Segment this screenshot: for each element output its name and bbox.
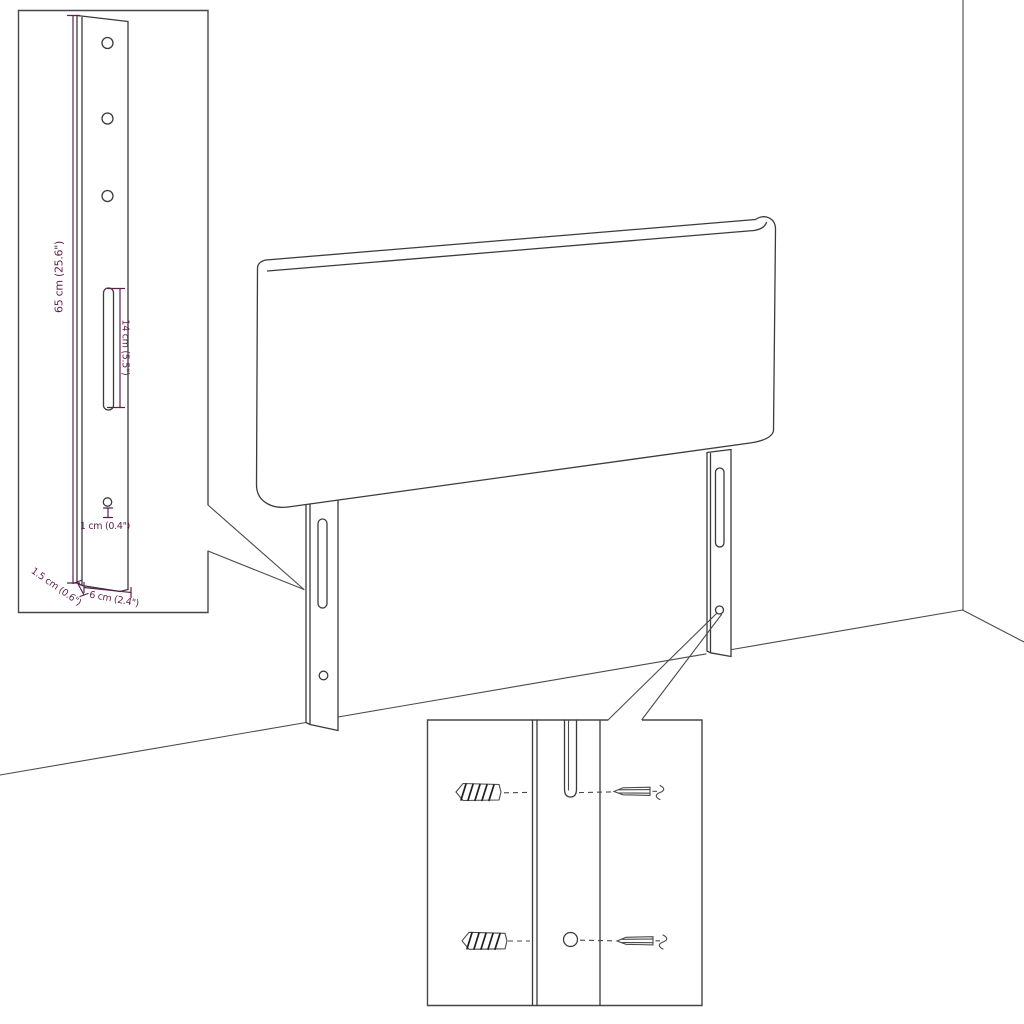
right-callout-line-left — [608, 614, 717, 721]
left-leg-bottom — [306, 723, 338, 731]
bracket-hole-1 — [102, 38, 113, 49]
right-leg-slot — [716, 468, 725, 547]
right-callout-lines — [608, 614, 722, 721]
room-corner-lines — [0, 0, 1024, 775]
dimension-65cm: 65 cm (25.6") — [53, 16, 80, 584]
dimension-1cm: 1 cm (0.4") — [80, 508, 130, 532]
left-leg-slot — [318, 519, 327, 608]
wall-plug-top — [456, 784, 501, 801]
left-callout-line-top — [208, 505, 304, 590]
assembly-diagram: 65 cm (25.6") 14 cm (5.5") 1 cm (0.4") 1… — [0, 0, 1024, 1024]
floor-line-left-c — [732, 610, 963, 650]
hardware-row-top — [456, 784, 664, 801]
hardware-row-bottom — [462, 932, 667, 949]
strip-slot — [565, 720, 577, 797]
diagram-canvas: 65 cm (25.6") 14 cm (5.5") 1 cm (0.4") 1… — [0, 0, 1024, 1024]
label-leg-thickness: 1.5 cm (0.6") — [29, 566, 83, 609]
left-leg-hole — [319, 671, 328, 680]
headboard-panel — [257, 217, 776, 508]
right-leg-top — [707, 450, 731, 453]
dimension-14cm: 14 cm (5.5") — [108, 289, 131, 408]
left-callout-lines — [208, 505, 304, 590]
bracket-small-hole — [103, 498, 111, 506]
screw-top-thread-squiggle — [656, 786, 664, 800]
dimension-1point5cm: 1.5 cm (0.6") — [29, 566, 88, 609]
floor-line-right — [963, 610, 1024, 642]
left-leg — [306, 500, 338, 731]
leg-strip-closeup — [533, 720, 601, 1006]
bracket-hole-3 — [102, 191, 113, 202]
label-leg-height: 65 cm (25.6") — [53, 241, 66, 313]
bracket-slot — [104, 288, 114, 410]
label-hole-diameter: 1 cm (0.4") — [80, 521, 130, 532]
floor-line-left-a — [0, 723, 306, 776]
label-leg-width: 6 cm (2.4") — [88, 590, 139, 610]
wall-plug-bottom — [462, 932, 507, 949]
left-callout-line-bottom — [208, 551, 304, 590]
right-leg — [707, 450, 731, 657]
right-callout-line-right — [642, 615, 722, 720]
screw-bottom-thread-squiggle — [659, 935, 667, 949]
leg-detail-inset: 65 cm (25.6") 14 cm (5.5") 1 cm (0.4") 1… — [19, 11, 209, 613]
screw-top — [614, 786, 664, 800]
headboard-top-lip — [268, 223, 767, 272]
guide-dash-top-right — [579, 792, 612, 793]
screw-bottom — [617, 935, 667, 949]
headboard-outline — [257, 217, 776, 508]
strip-hole — [564, 933, 578, 947]
bracket-hole-2 — [102, 113, 113, 124]
right-leg-hole — [716, 606, 724, 614]
hardware-detail-inset — [428, 720, 703, 1006]
label-slot-length: 14 cm (5.5") — [120, 320, 131, 376]
guide-dash-bottom-right — [580, 940, 614, 941]
bracket-top-edge — [77, 16, 128, 22]
